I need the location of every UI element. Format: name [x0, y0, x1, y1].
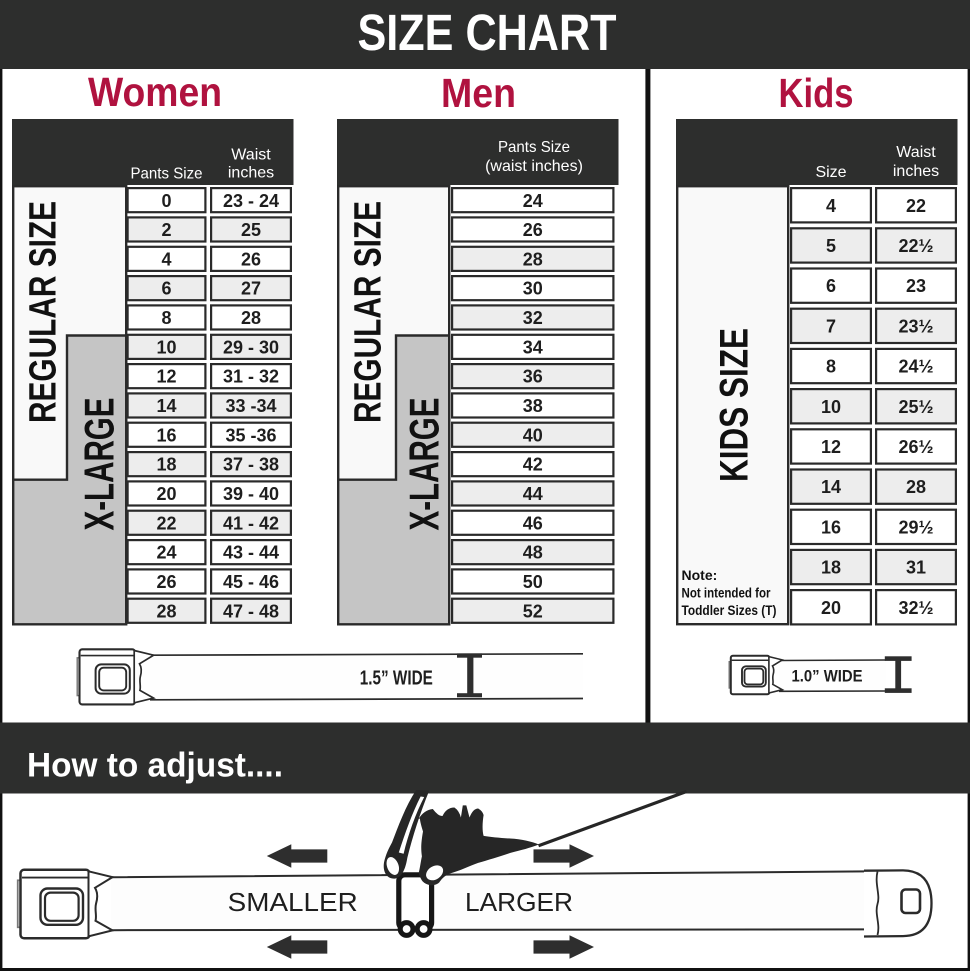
svg-text:27: 27 — [241, 279, 261, 299]
svg-text:X-LARGE: X-LARGE — [75, 398, 122, 531]
svg-text:inches: inches — [228, 165, 274, 182]
svg-text:48: 48 — [523, 543, 543, 563]
svg-text:14: 14 — [821, 477, 841, 497]
svg-text:25: 25 — [241, 220, 261, 240]
svg-text:46: 46 — [523, 513, 543, 533]
svg-text:42: 42 — [523, 455, 543, 475]
svg-text:10: 10 — [821, 397, 841, 417]
svg-text:41 - 42: 41 - 42 — [223, 513, 279, 533]
svg-text:Pants Size: Pants Size — [498, 139, 570, 156]
svg-text:4: 4 — [826, 196, 836, 216]
svg-text:7: 7 — [826, 316, 836, 336]
svg-text:Note:: Note: — [682, 567, 718, 583]
svg-text:37 - 38: 37 - 38 — [223, 455, 279, 475]
svg-text:43 - 44: 43 - 44 — [223, 543, 279, 563]
svg-text:1.0” WIDE: 1.0” WIDE — [792, 667, 863, 685]
svg-text:23 - 24: 23 - 24 — [223, 191, 279, 211]
svg-text:Waist: Waist — [896, 144, 936, 161]
svg-text:Waist: Waist — [231, 147, 271, 164]
svg-text:28: 28 — [523, 249, 543, 269]
svg-text:50: 50 — [523, 572, 543, 592]
svg-text:6: 6 — [826, 276, 836, 296]
svg-text:SIZE CHART: SIZE CHART — [358, 4, 617, 61]
svg-text:16: 16 — [821, 517, 841, 537]
svg-text:12: 12 — [821, 437, 841, 457]
svg-text:36: 36 — [523, 367, 543, 387]
svg-text:28: 28 — [156, 601, 176, 621]
svg-text:22: 22 — [906, 196, 926, 216]
svg-text:(waist inches): (waist inches) — [485, 158, 583, 175]
svg-text:inches: inches — [893, 163, 939, 180]
svg-text:14: 14 — [156, 396, 176, 416]
svg-text:31: 31 — [906, 558, 926, 578]
svg-text:28: 28 — [241, 308, 261, 328]
svg-text:18: 18 — [156, 455, 176, 475]
svg-text:25½: 25½ — [898, 397, 933, 417]
svg-text:31 - 32: 31 - 32 — [223, 367, 279, 387]
svg-text:20: 20 — [156, 484, 176, 504]
svg-text:39 - 40: 39 - 40 — [223, 484, 279, 504]
svg-text:34: 34 — [523, 337, 543, 357]
svg-text:38: 38 — [523, 396, 543, 416]
svg-text:6: 6 — [161, 279, 171, 299]
svg-text:Pants Size: Pants Size — [131, 166, 203, 183]
svg-text:SMALLER: SMALLER — [228, 887, 358, 917]
svg-text:1.5” WIDE: 1.5” WIDE — [360, 668, 433, 690]
svg-text:10: 10 — [156, 337, 176, 357]
svg-text:5: 5 — [826, 236, 836, 256]
svg-text:22: 22 — [156, 513, 176, 533]
svg-text:0: 0 — [161, 191, 171, 211]
svg-text:4: 4 — [161, 249, 171, 269]
svg-text:33 -34: 33 -34 — [225, 396, 276, 416]
svg-text:47 - 48: 47 - 48 — [223, 601, 279, 621]
svg-text:12: 12 — [156, 367, 176, 387]
svg-text:Men: Men — [441, 70, 516, 116]
svg-text:24: 24 — [156, 543, 176, 563]
svg-text:32½: 32½ — [898, 598, 933, 618]
svg-text:Kids: Kids — [779, 70, 854, 116]
svg-text:24: 24 — [523, 191, 543, 211]
svg-text:26: 26 — [241, 249, 261, 269]
svg-text:24½: 24½ — [898, 357, 933, 377]
svg-text:26: 26 — [523, 220, 543, 240]
svg-text:How to adjust....: How to adjust.... — [27, 747, 283, 785]
svg-text:22½: 22½ — [898, 236, 933, 256]
svg-text:X-LARGE: X-LARGE — [400, 398, 447, 531]
svg-text:Not intended for: Not intended for — [682, 585, 771, 601]
svg-text:16: 16 — [156, 425, 176, 445]
svg-text:20: 20 — [821, 598, 841, 618]
svg-text:28: 28 — [906, 477, 926, 497]
svg-text:REGULAR SIZE: REGULAR SIZE — [22, 201, 64, 423]
svg-text:40: 40 — [523, 425, 543, 445]
svg-text:45 - 46: 45 - 46 — [223, 572, 279, 592]
svg-text:30: 30 — [523, 279, 543, 299]
svg-text:KIDS SIZE: KIDS SIZE — [713, 328, 757, 482]
svg-text:29½: 29½ — [898, 517, 933, 537]
svg-text:8: 8 — [161, 308, 171, 328]
svg-text:44: 44 — [523, 484, 543, 504]
svg-text:32: 32 — [523, 308, 543, 328]
svg-text:REGULAR SIZE: REGULAR SIZE — [347, 201, 389, 423]
svg-text:2: 2 — [161, 220, 171, 240]
svg-text:52: 52 — [523, 601, 543, 621]
svg-text:Size: Size — [815, 164, 846, 181]
svg-text:29 - 30: 29 - 30 — [223, 337, 279, 357]
svg-text:18: 18 — [821, 558, 841, 578]
svg-text:26½: 26½ — [898, 437, 933, 457]
svg-text:LARGER: LARGER — [465, 887, 573, 917]
svg-text:8: 8 — [826, 357, 836, 377]
svg-text:26: 26 — [156, 572, 176, 592]
svg-text:Women: Women — [88, 69, 222, 115]
svg-text:35 -36: 35 -36 — [225, 425, 276, 445]
svg-text:Toddler Sizes (T): Toddler Sizes (T) — [682, 602, 777, 618]
svg-text:23½: 23½ — [898, 316, 933, 336]
svg-text:23: 23 — [906, 276, 926, 296]
